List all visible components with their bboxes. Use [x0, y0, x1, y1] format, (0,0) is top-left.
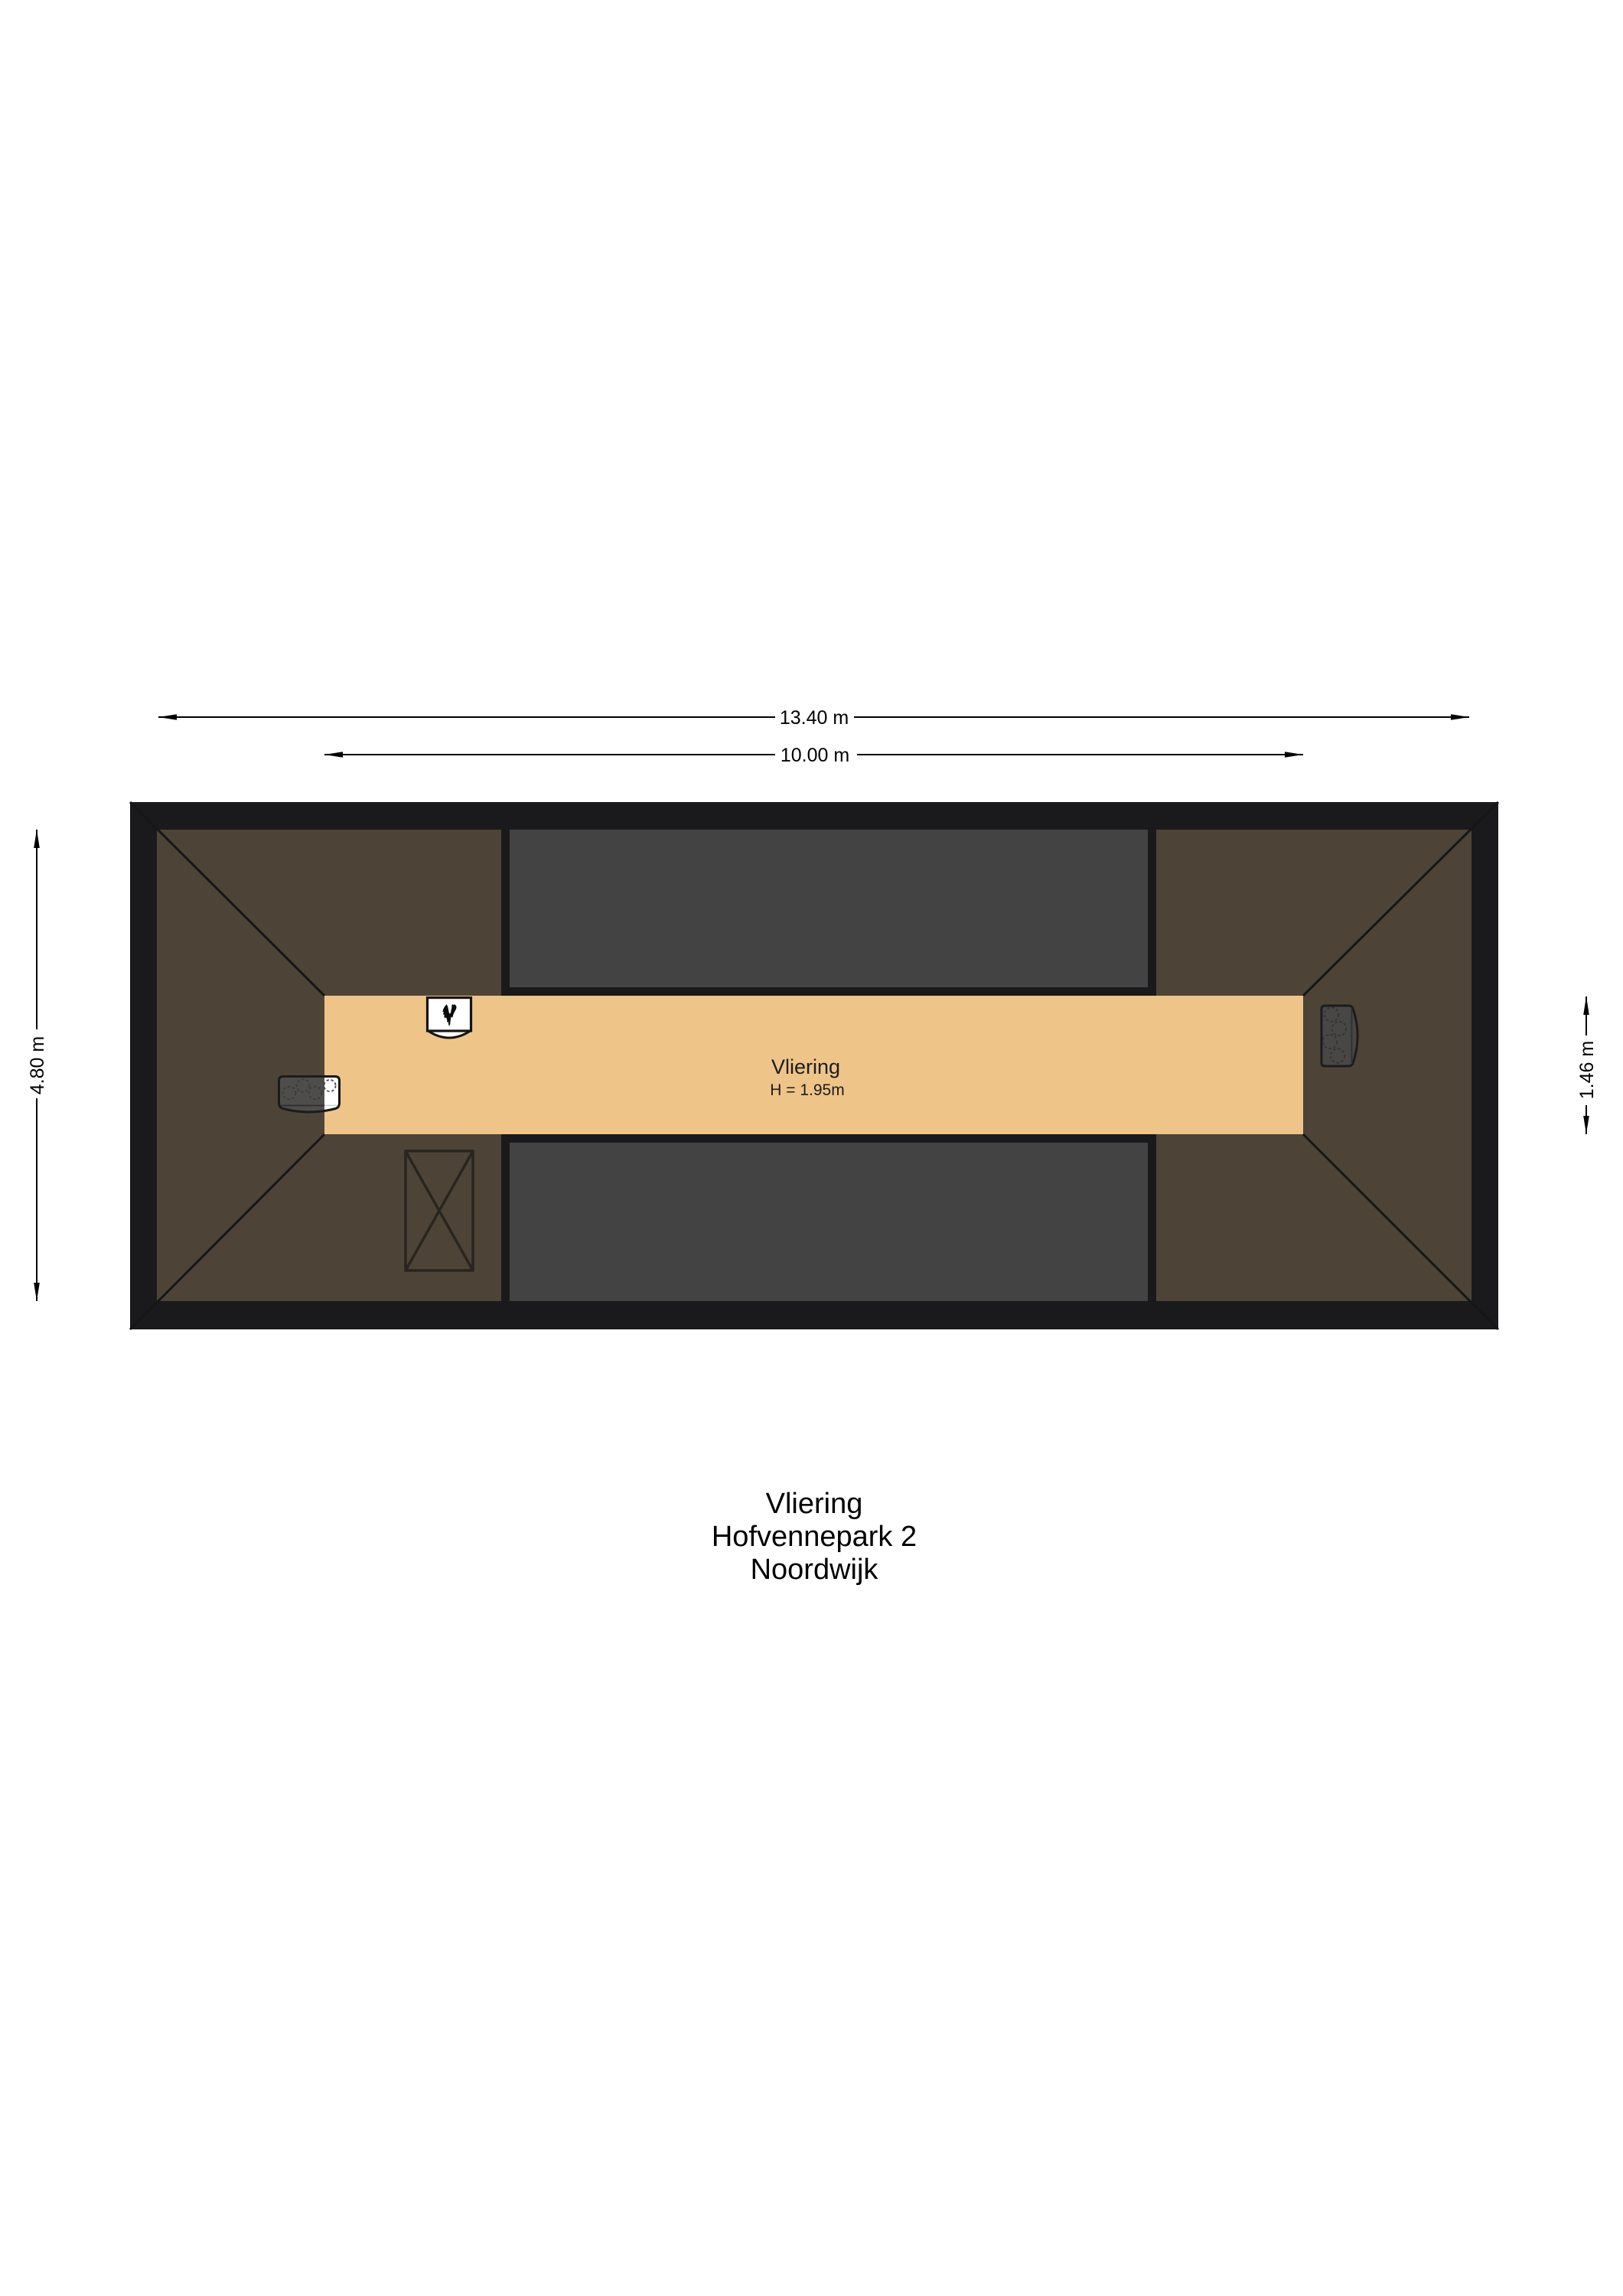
svg-text:Vliering: Vliering	[766, 1488, 863, 1520]
svg-text:10.00 m: 10.00 m	[781, 745, 849, 766]
svg-text:Hofvennepark 2: Hofvennepark 2	[712, 1521, 917, 1553]
svg-text:13.40 m: 13.40 m	[780, 707, 849, 729]
svg-text:1.46 m: 1.46 m	[1576, 1041, 1598, 1099]
svg-text:H = 1.95m: H = 1.95m	[770, 1081, 844, 1099]
svg-text:Vliering: Vliering	[771, 1055, 840, 1078]
svg-text:Noordwijk: Noordwijk	[751, 1554, 879, 1586]
svg-text:4.80 m: 4.80 m	[27, 1036, 48, 1094]
